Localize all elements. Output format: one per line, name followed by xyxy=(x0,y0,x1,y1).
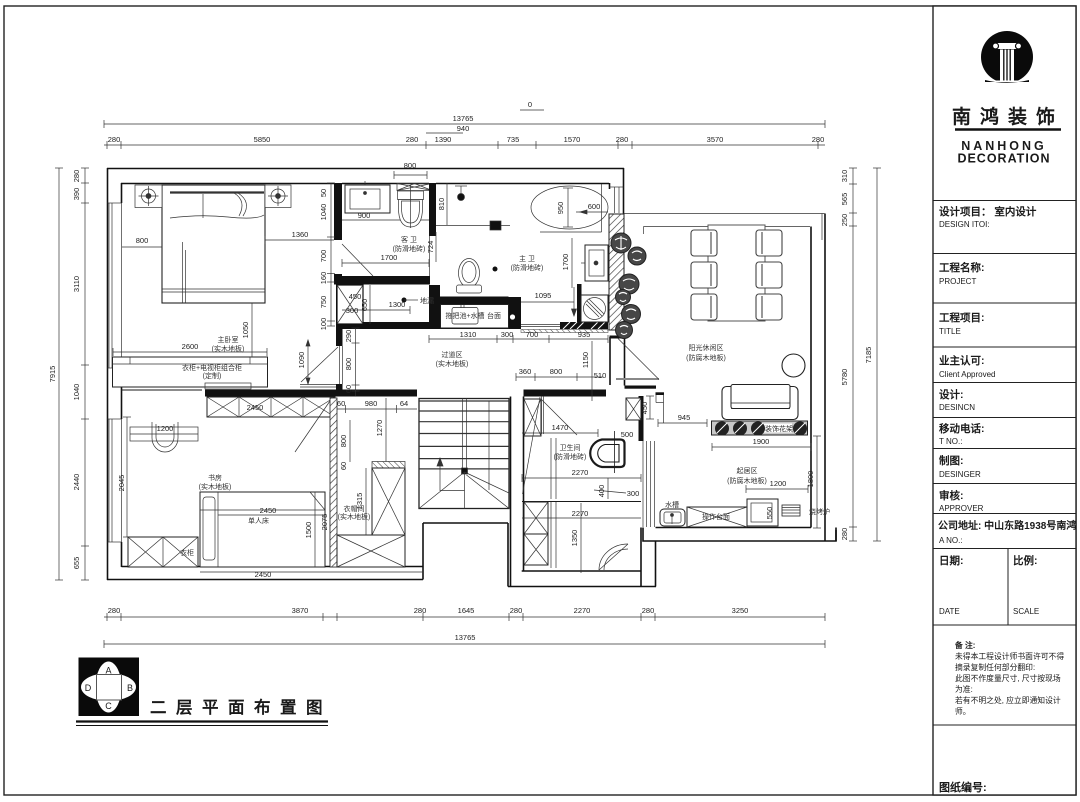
svg-text:280: 280 xyxy=(414,606,427,615)
svg-text:810: 810 xyxy=(437,198,446,211)
svg-text:0: 0 xyxy=(528,100,532,109)
svg-text:2600: 2600 xyxy=(182,342,199,351)
svg-text:2045: 2045 xyxy=(117,475,126,492)
svg-text:1360: 1360 xyxy=(292,230,309,239)
svg-text:此图不作度量尺寸, 尺寸按现场: 此图不作度量尺寸, 尺寸按现场 xyxy=(955,673,1061,683)
svg-text:师。: 师。 xyxy=(955,706,971,716)
svg-text:800: 800 xyxy=(404,161,417,170)
svg-text:审核:: 审核: xyxy=(939,489,964,502)
svg-text:D: D xyxy=(85,683,92,693)
svg-text:300: 300 xyxy=(501,330,514,339)
svg-text:935: 935 xyxy=(578,330,591,339)
svg-text:(实木地板): (实木地板) xyxy=(338,512,371,521)
svg-text:1270: 1270 xyxy=(375,420,384,437)
svg-text:(防滑地砖): (防滑地砖) xyxy=(554,452,587,461)
svg-text:13765: 13765 xyxy=(455,633,476,642)
svg-text:2270: 2270 xyxy=(572,509,589,518)
svg-text:5850: 5850 xyxy=(254,135,271,144)
svg-text:100: 100 xyxy=(319,318,328,331)
svg-text:160: 160 xyxy=(319,272,328,285)
svg-text:1390: 1390 xyxy=(435,135,452,144)
svg-text:300: 300 xyxy=(627,489,640,498)
svg-text:60: 60 xyxy=(339,462,348,470)
svg-text:800: 800 xyxy=(339,435,348,448)
svg-text:280: 280 xyxy=(642,606,655,615)
svg-text:13765: 13765 xyxy=(453,114,474,123)
svg-text:(防腐木地板): (防腐木地板) xyxy=(686,353,726,362)
svg-text:800: 800 xyxy=(136,236,149,245)
svg-text:烧烤炉: 烧烤炉 xyxy=(809,507,830,516)
svg-text:900: 900 xyxy=(358,211,371,220)
svg-text:50: 50 xyxy=(319,189,328,197)
svg-text:3250: 3250 xyxy=(732,606,749,615)
svg-text:950: 950 xyxy=(556,202,565,215)
svg-text:日期:: 日期: xyxy=(939,554,964,567)
svg-text:60: 60 xyxy=(344,385,353,393)
svg-text:1040: 1040 xyxy=(319,204,328,221)
svg-text:7185: 7185 xyxy=(864,347,873,364)
svg-text:设计:: 设计: xyxy=(939,388,964,401)
svg-text:B: B xyxy=(127,683,133,693)
svg-text:300: 300 xyxy=(346,306,359,315)
svg-text:280: 280 xyxy=(108,606,121,615)
svg-text:主卧室: 主卧室 xyxy=(218,335,239,344)
svg-text:PROJECT: PROJECT xyxy=(939,277,976,286)
svg-text:1310: 1310 xyxy=(460,330,477,339)
svg-text:工程名称:: 工程名称: xyxy=(939,261,985,274)
svg-text:业主认可:: 业主认可: xyxy=(939,354,985,367)
svg-text:600: 600 xyxy=(588,202,601,211)
svg-text:735: 735 xyxy=(507,135,520,144)
svg-text:拖把池+水槽: 拖把池+水槽 xyxy=(445,311,484,320)
svg-text:起居区: 起居区 xyxy=(737,467,758,475)
svg-text:2450: 2450 xyxy=(260,506,277,515)
svg-text:(防滑地砖): (防滑地砖) xyxy=(393,244,426,253)
svg-text:280: 280 xyxy=(840,528,849,541)
svg-text:945: 945 xyxy=(678,413,691,422)
svg-text:A: A xyxy=(105,666,111,676)
svg-text:2270: 2270 xyxy=(574,606,591,615)
svg-text:650: 650 xyxy=(360,299,369,312)
svg-text:工程项目:: 工程项目: xyxy=(939,311,985,324)
svg-text:Client Approved: Client Approved xyxy=(939,370,995,379)
svg-text:书房: 书房 xyxy=(208,473,222,482)
svg-text:2270: 2270 xyxy=(572,468,589,477)
svg-text:400: 400 xyxy=(597,485,606,498)
svg-text:水槽: 水槽 xyxy=(665,500,679,509)
svg-text:公司地址: 中山东路1938号南鸿: 公司地址: 中山东路1938号南鸿 xyxy=(938,519,1076,532)
svg-text:565: 565 xyxy=(840,193,849,206)
svg-text:280: 280 xyxy=(812,135,825,144)
svg-text:设计项目： 室内设计: 设计项目： 室内设计 xyxy=(939,205,1037,218)
svg-text:APPROVER: APPROVER xyxy=(939,504,984,513)
svg-text:450: 450 xyxy=(640,402,649,415)
svg-text:3870: 3870 xyxy=(292,606,309,615)
svg-text:SCALE: SCALE xyxy=(1013,607,1039,616)
svg-text:主 卫: 主 卫 xyxy=(519,254,535,263)
svg-text:未得本工程设计师书面许可不得: 未得本工程设计师书面许可不得 xyxy=(955,651,1064,661)
svg-text:1570: 1570 xyxy=(564,135,581,144)
svg-text:700: 700 xyxy=(319,250,328,263)
svg-text:(防腐木地板): (防腐木地板) xyxy=(727,476,767,485)
svg-text:DESINGER: DESINGER xyxy=(939,470,981,479)
svg-text:1040: 1040 xyxy=(72,384,81,401)
svg-text:DESIGN ITOI:: DESIGN ITOI: xyxy=(939,220,990,229)
svg-text:衣柜+电视柜组合柜: 衣柜+电视柜组合柜 xyxy=(182,363,242,372)
svg-text:单人床: 单人床 xyxy=(248,516,269,525)
svg-text:1150: 1150 xyxy=(581,352,590,368)
svg-text:摘录复制任何部分翻印:: 摘录复制任何部分翻印: xyxy=(955,662,1035,672)
svg-text:(实木地板): (实木地板) xyxy=(212,344,245,353)
svg-text:1095: 1095 xyxy=(535,291,552,300)
svg-text:1200: 1200 xyxy=(770,479,787,488)
svg-text:1090: 1090 xyxy=(297,352,306,369)
svg-text:550: 550 xyxy=(765,507,774,520)
svg-text:南鸿装饰: 南鸿装饰 xyxy=(952,105,1064,128)
svg-text:360: 360 xyxy=(519,367,532,376)
svg-text:阳光休闲区: 阳光休闲区 xyxy=(689,343,724,352)
svg-text:(实木地板): (实木地板) xyxy=(199,482,232,491)
svg-text:DESINCN: DESINCN xyxy=(939,403,975,412)
svg-text:备 注:: 备 注: xyxy=(954,640,975,650)
svg-text:过道区: 过道区 xyxy=(442,350,463,359)
svg-text:1800: 1800 xyxy=(806,471,815,488)
svg-text:940: 940 xyxy=(457,124,470,133)
svg-text:5780: 5780 xyxy=(840,369,849,386)
svg-text:500: 500 xyxy=(621,430,634,439)
svg-text:DECORATION: DECORATION xyxy=(957,152,1050,166)
svg-text:3110: 3110 xyxy=(72,276,81,292)
svg-text:比例:: 比例: xyxy=(1013,554,1038,567)
svg-text:750: 750 xyxy=(319,296,328,309)
svg-text:2450: 2450 xyxy=(247,403,264,412)
svg-text:3570: 3570 xyxy=(707,135,724,144)
svg-text:2440: 2440 xyxy=(72,474,81,491)
svg-text:655: 655 xyxy=(72,557,81,570)
svg-text:980: 980 xyxy=(365,399,378,408)
svg-text:若有不明之处, 应立即通知设计: 若有不明之处, 应立即通知设计 xyxy=(955,695,1061,705)
svg-text:280: 280 xyxy=(406,135,419,144)
svg-text:图纸编号:: 图纸编号: xyxy=(939,780,987,794)
svg-text:1050: 1050 xyxy=(241,322,250,339)
svg-text:T NO.:: T NO.: xyxy=(939,437,962,446)
svg-text:700: 700 xyxy=(526,330,539,339)
svg-text:地漏: 地漏 xyxy=(420,296,434,305)
svg-text:卫生间: 卫生间 xyxy=(560,443,581,452)
svg-text:C: C xyxy=(105,701,112,711)
svg-text:1900: 1900 xyxy=(753,437,770,446)
svg-text:1500: 1500 xyxy=(304,522,313,539)
svg-text:800: 800 xyxy=(550,367,563,376)
svg-text:724: 724 xyxy=(426,241,435,254)
svg-text:64: 64 xyxy=(400,399,408,408)
svg-text:为准:: 为准: xyxy=(955,684,973,694)
svg-text:280: 280 xyxy=(616,135,629,144)
svg-text:250: 250 xyxy=(840,214,849,227)
svg-text:TITLE: TITLE xyxy=(939,327,961,336)
svg-text:台面: 台面 xyxy=(487,311,501,320)
svg-text:1315: 1315 xyxy=(355,493,364,510)
svg-text:A NO.:: A NO.: xyxy=(939,536,963,545)
svg-text:1700: 1700 xyxy=(381,253,398,262)
svg-text:1470: 1470 xyxy=(552,423,569,432)
svg-text:280: 280 xyxy=(510,606,523,615)
svg-text:800: 800 xyxy=(344,358,353,371)
svg-text:二层平面布置图: 二层平面布置图 xyxy=(150,697,332,717)
svg-text:移动电话:: 移动电话: xyxy=(939,422,985,435)
svg-text:制图:: 制图: xyxy=(939,454,964,467)
svg-text:(定制): (定制) xyxy=(203,371,222,380)
svg-text:1200: 1200 xyxy=(157,424,174,433)
svg-text:1700: 1700 xyxy=(561,254,570,271)
svg-text:7915: 7915 xyxy=(48,366,57,383)
svg-text:衣柜: 衣柜 xyxy=(180,548,194,557)
svg-text:2450: 2450 xyxy=(255,570,272,579)
svg-text:1350: 1350 xyxy=(570,530,579,547)
svg-text:客 卫: 客 卫 xyxy=(401,235,417,244)
svg-text:2075: 2075 xyxy=(320,514,329,531)
svg-text:310: 310 xyxy=(840,170,849,183)
svg-text:280: 280 xyxy=(108,135,121,144)
svg-text:操作台面: 操作台面 xyxy=(702,512,730,521)
svg-text:DATE: DATE xyxy=(939,607,960,616)
svg-text:390: 390 xyxy=(72,188,81,201)
svg-text:510: 510 xyxy=(594,371,607,380)
svg-text:290: 290 xyxy=(344,330,353,343)
svg-text:装饰花架: 装饰花架 xyxy=(765,424,793,433)
svg-text:1645: 1645 xyxy=(458,606,475,615)
svg-text:(防滑地砖): (防滑地砖) xyxy=(511,263,544,272)
svg-text:280: 280 xyxy=(72,170,81,183)
svg-text:(实木地板): (实木地板) xyxy=(436,359,469,368)
